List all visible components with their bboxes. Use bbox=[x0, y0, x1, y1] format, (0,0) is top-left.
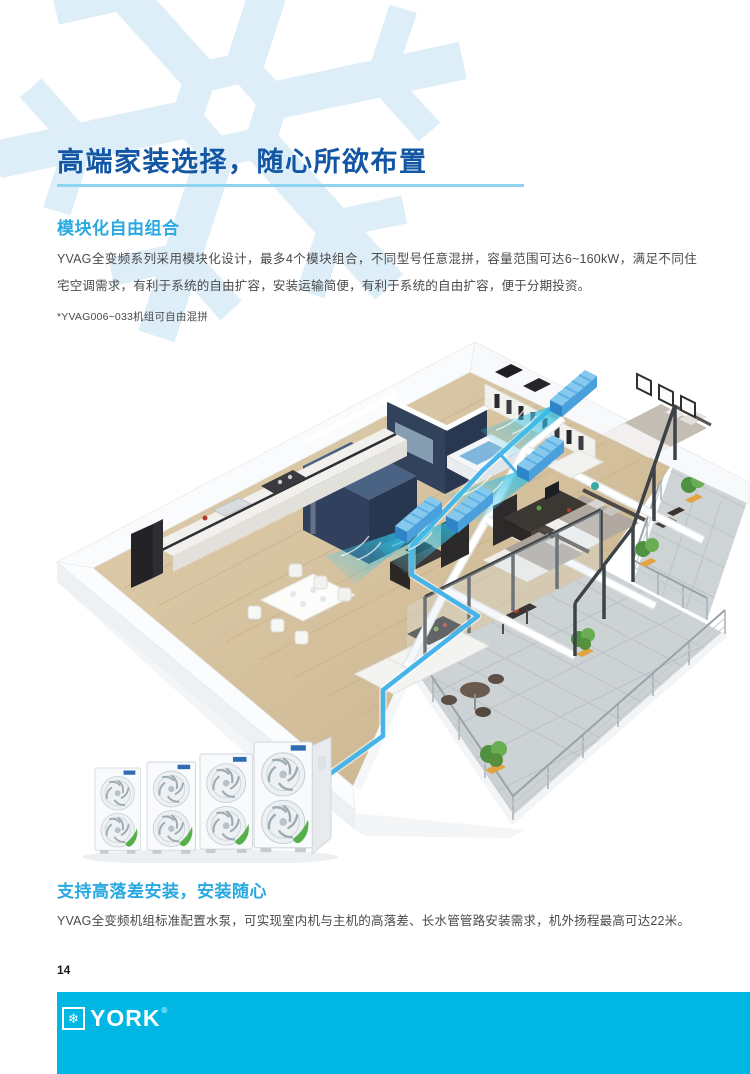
side-panel bbox=[312, 737, 331, 854]
york-badge bbox=[178, 765, 191, 770]
brochure-page: 高端家装选择，随心所欲布置 模块化自由组合 YVAG全变频系列采用模块化设计，最… bbox=[0, 0, 750, 1074]
section2-heading: 支持高落差安装，安装随心 bbox=[57, 877, 267, 902]
outdoor-unit-module bbox=[95, 768, 140, 854]
section2-body: YVAG全变频机组标准配置水泵，可实现室内机与主机的高落差、长水管管路安装需求，… bbox=[57, 908, 697, 935]
snowflake-logo-icon: ❄ bbox=[62, 1007, 85, 1030]
title-underline bbox=[57, 184, 524, 187]
section1-body: YVAG全变频系列采用模块化设计，最多4个模块组合，不同型号任意混拼，容量范围可… bbox=[57, 246, 697, 300]
york-logo: ❄ YORK ® bbox=[62, 1007, 167, 1030]
york-badge bbox=[124, 771, 136, 775]
brand-name: YORK bbox=[90, 1007, 160, 1030]
registered-mark: ® bbox=[161, 1007, 167, 1015]
outdoor-unit-module bbox=[200, 754, 252, 853]
york-badge bbox=[291, 745, 306, 750]
page-title: 高端家装选择，随心所欲布置 bbox=[57, 140, 428, 179]
page-number: 14 bbox=[57, 963, 70, 977]
floorplan-illustration bbox=[55, 338, 750, 863]
footer-bar: ❄ YORK ® bbox=[57, 992, 750, 1074]
section1-heading: 模块化自由组合 bbox=[57, 214, 180, 239]
york-badge bbox=[233, 757, 247, 762]
outdoor-unit-bank bbox=[82, 737, 338, 863]
fridge bbox=[131, 524, 153, 588]
outdoor-unit-module bbox=[147, 762, 196, 854]
outdoor-unit-module bbox=[254, 742, 312, 852]
section1-footnote: *YVAG006~033机组可自由混拼 bbox=[57, 309, 208, 324]
